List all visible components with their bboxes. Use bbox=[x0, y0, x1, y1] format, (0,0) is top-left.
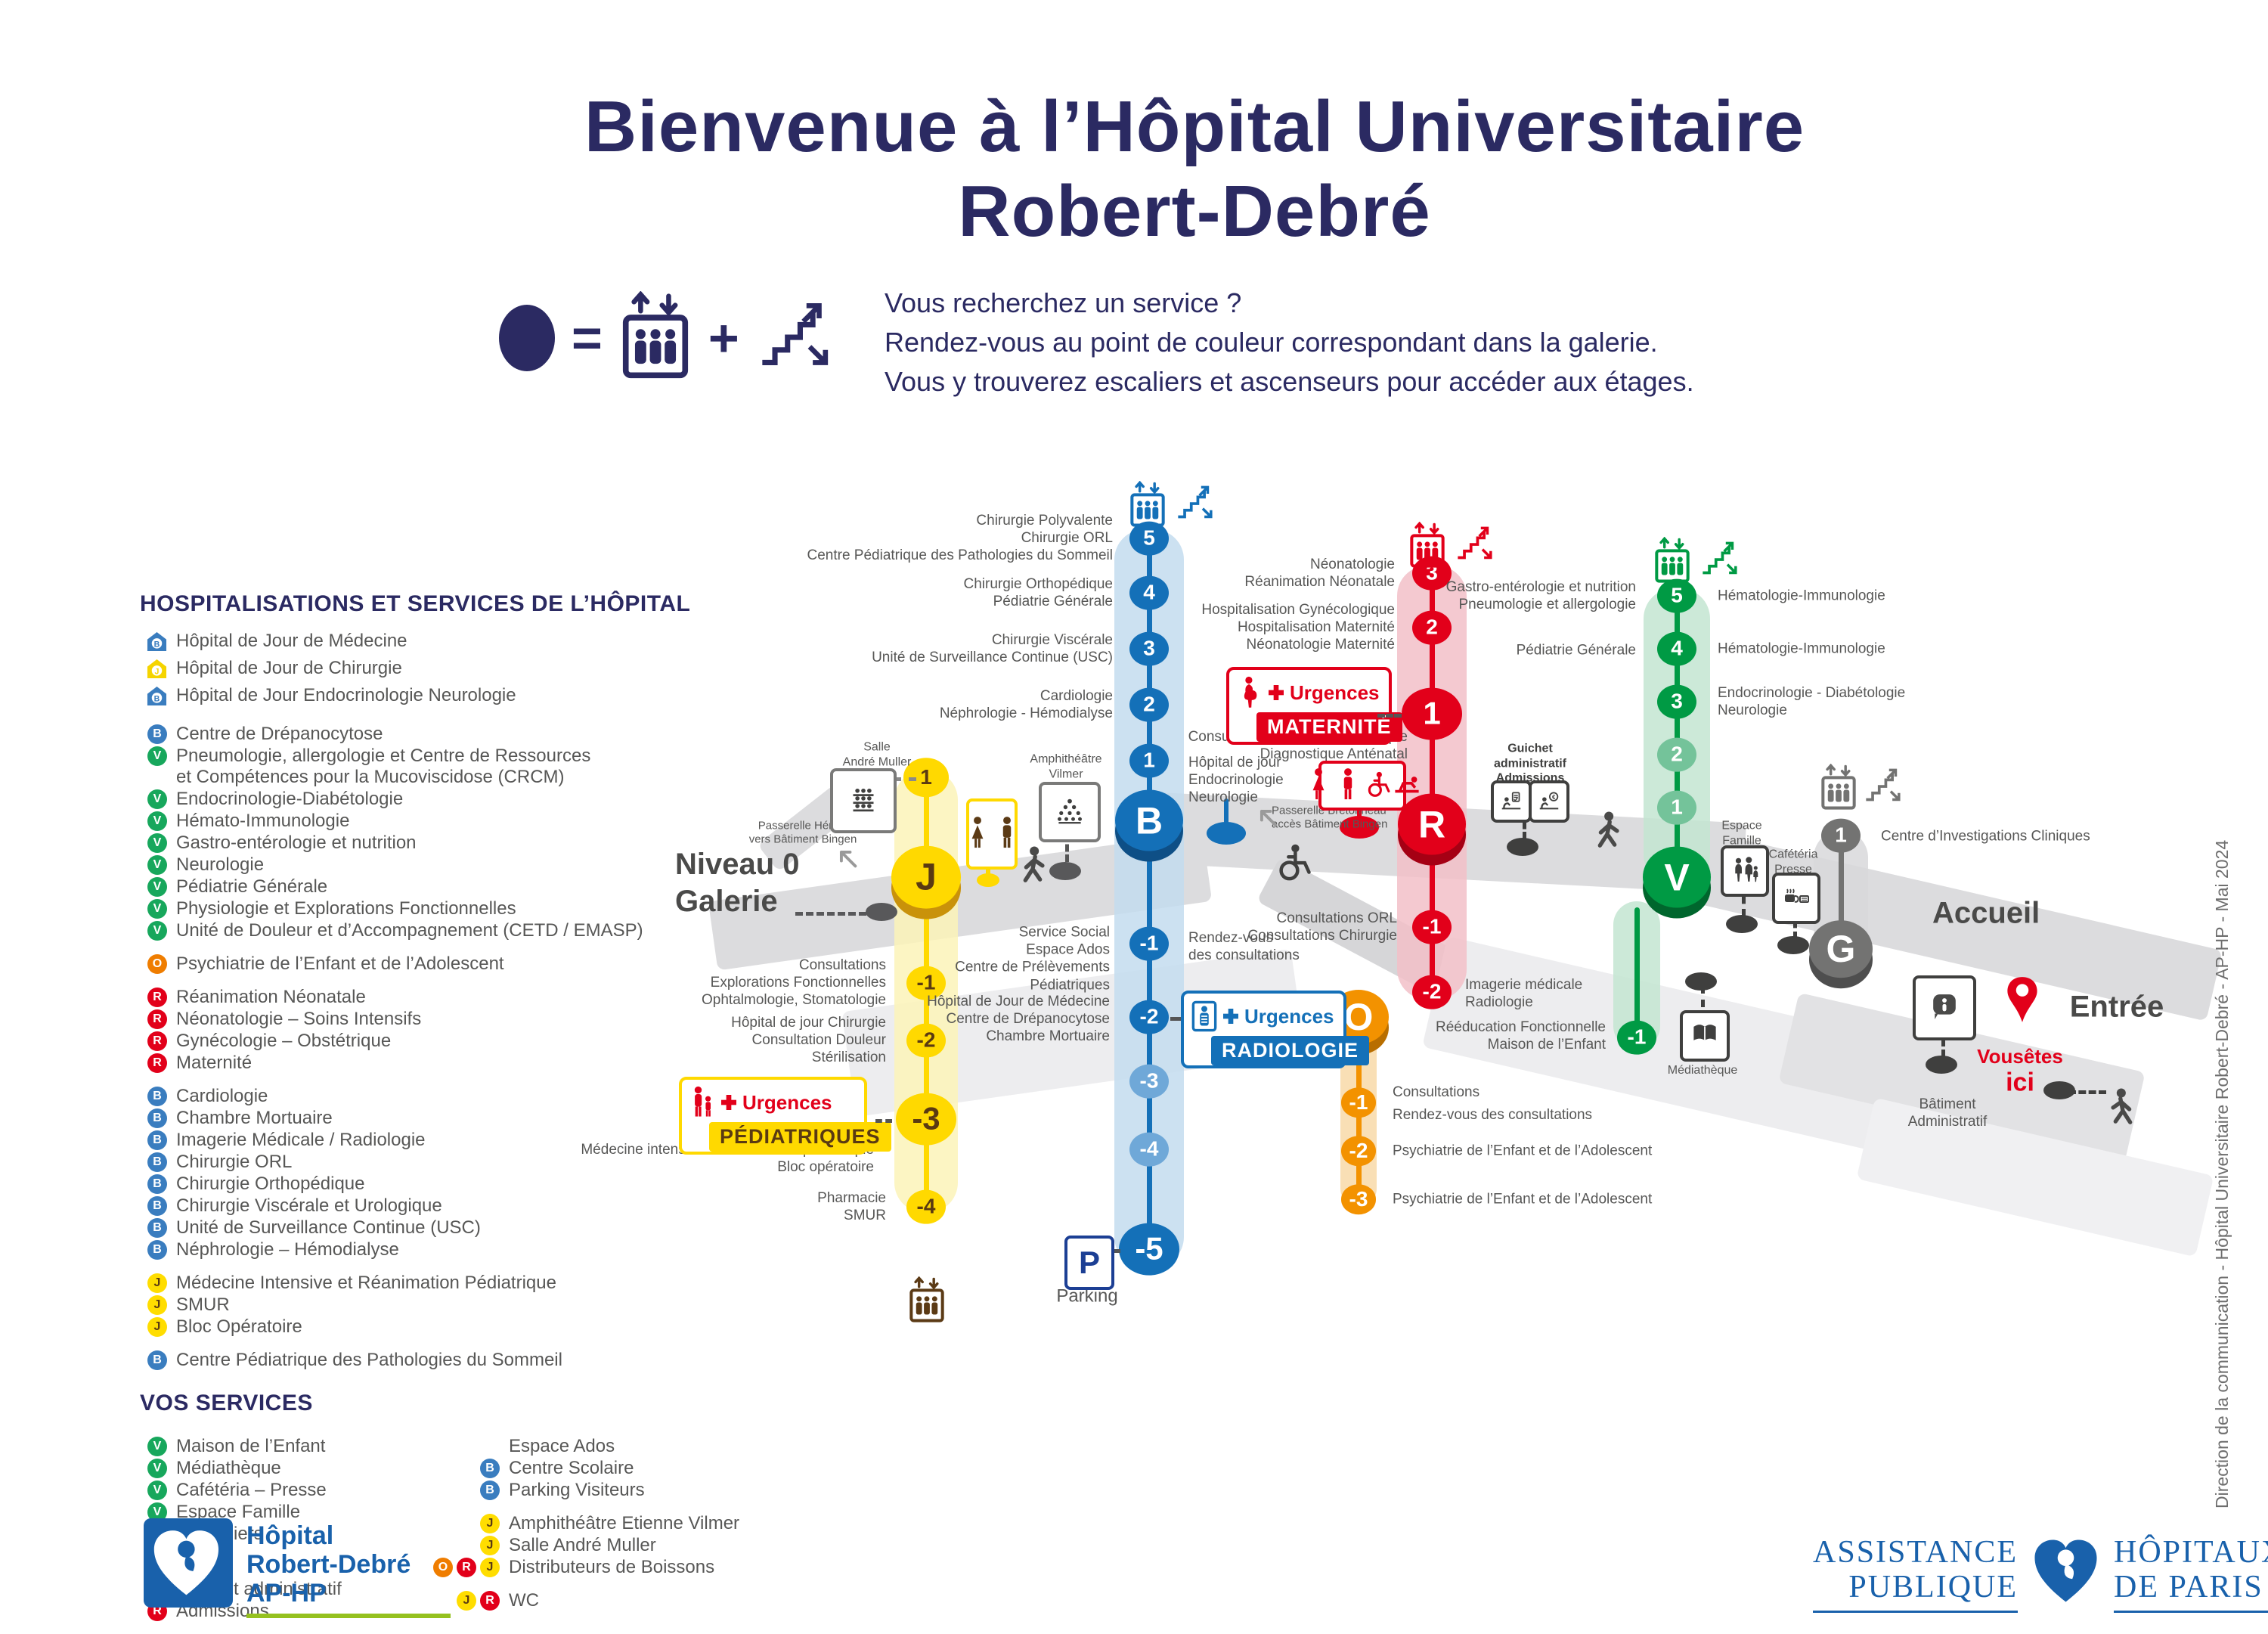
floor-R--2: -2 bbox=[1412, 975, 1452, 1009]
hub-J: J bbox=[891, 846, 961, 909]
elevator-icon-R bbox=[1408, 522, 1447, 572]
legend-item-badges: B bbox=[140, 724, 167, 744]
pregnant-icon bbox=[1237, 676, 1263, 709]
hospital-logo: Hôpital Robert-Debré AP-HP bbox=[144, 1518, 451, 1618]
person-icon bbox=[1592, 811, 1622, 854]
map-label: Psychiatrie de l’Enfant et de l’Adolesce… bbox=[1393, 1142, 1652, 1159]
man-icon bbox=[993, 816, 1021, 849]
column-line-V-lower bbox=[1634, 907, 1640, 1037]
info-icon bbox=[1931, 990, 1958, 1027]
legend-item-label: Hôpital de Jour de Médecine bbox=[176, 631, 407, 652]
urgences-pediatriques-sub: PÉDIATRIQUES bbox=[709, 1122, 891, 1152]
intro-line: Rendez-vous au point de couleur correspo… bbox=[885, 323, 1694, 362]
badge-V: V bbox=[147, 746, 167, 766]
legend-item-label: Cardiologie bbox=[176, 1086, 268, 1107]
legend-item-label: Centre Pédiatrique des Pathologies du So… bbox=[176, 1350, 562, 1371]
desk-doc-icon bbox=[1501, 787, 1522, 817]
legend-item: JBloc Opératoire bbox=[140, 1316, 745, 1338]
map-label: Niveau 0Galerie bbox=[675, 846, 800, 920]
legend-item: BCardiologie bbox=[140, 1086, 745, 1107]
legend-group: BCentre Pédiatrique des Pathologies du S… bbox=[140, 1350, 745, 1371]
legend-item-badges: J bbox=[140, 658, 167, 684]
legend-item-label: Chambre Mortuaire bbox=[176, 1108, 333, 1129]
legend-item-label: Pédiatrie Générale bbox=[176, 876, 327, 898]
legend-item-badges: B bbox=[140, 1350, 167, 1370]
xray-icon bbox=[1191, 1000, 1217, 1033]
meeting-icon bbox=[850, 783, 877, 816]
map-label: Consultations ORLConsultations Chirurgie bbox=[1248, 910, 1398, 944]
info-icon bbox=[1931, 990, 1958, 1023]
legend-item: JHôpital de Jour de Chirurgie bbox=[140, 658, 745, 684]
woman-icon bbox=[964, 816, 991, 849]
aphp-text: PUBLIQUE bbox=[1813, 1570, 2018, 1605]
stairs-icon bbox=[1863, 767, 1901, 805]
hopital-de-jour-chirurgie-icon: J bbox=[147, 659, 167, 684]
map-label: AmphithéâtreVilmer bbox=[1030, 752, 1101, 781]
person-icon bbox=[1018, 845, 1048, 889]
amphi-icon bbox=[1056, 794, 1083, 827]
gallery-dot bbox=[1507, 838, 1538, 856]
legend-item: BHôpital de Jour de Médecine bbox=[140, 631, 745, 657]
logo-text: Hôpital bbox=[246, 1521, 451, 1550]
floor-B--4: -4 bbox=[1129, 1133, 1169, 1167]
badge-R: R bbox=[147, 1053, 167, 1073]
legend-item: Espace Ados bbox=[421, 1436, 739, 1457]
desk-euro-icon: € bbox=[1538, 787, 1560, 813]
legend-item-label: Chirurgie Orthopédique bbox=[176, 1174, 364, 1195]
legend-item: VMédiathèque bbox=[140, 1458, 421, 1479]
sign-amphitheatre bbox=[1039, 782, 1101, 842]
pin-icon bbox=[2005, 975, 2040, 1024]
baby-icon bbox=[1393, 767, 1421, 801]
woman-icon bbox=[964, 816, 991, 853]
map-label: PharmacieSMUR bbox=[817, 1189, 886, 1224]
walking-person-icon bbox=[1018, 845, 1048, 893]
legend-item: VHémato-Immunologie bbox=[140, 811, 745, 832]
legend-item-badges: V bbox=[140, 833, 167, 853]
legend-item-label: Gastro-entérologie et nutrition bbox=[176, 833, 417, 854]
wheelchair-icon bbox=[1273, 842, 1312, 885]
legend-item-badges bbox=[421, 1436, 500, 1437]
badge-B: B bbox=[147, 1196, 167, 1216]
arrow-ul-icon bbox=[836, 847, 859, 870]
legend-item: JAmphithéâtre Etienne Vilmer bbox=[421, 1513, 739, 1534]
logo-text: Robert-Debré bbox=[246, 1550, 451, 1579]
services-title: VOS SERVICES bbox=[140, 1391, 745, 1416]
legend-item-badges: V bbox=[140, 1480, 167, 1500]
legend-item: VPhysiologie et Explorations Fonctionnel… bbox=[140, 898, 745, 919]
stairs-icon-R bbox=[1455, 525, 1492, 566]
svg-text:€: € bbox=[1552, 794, 1556, 801]
legend-item-label: Maison de l’Enfant bbox=[176, 1436, 325, 1457]
map-label: ici bbox=[2006, 1067, 2034, 1098]
hub-B: B bbox=[1115, 790, 1183, 851]
badge-V: V bbox=[147, 789, 167, 809]
legend-item: VPédiatrie Générale bbox=[140, 876, 745, 898]
legend-item-badges: B bbox=[140, 1174, 167, 1194]
urgences-pediatriques-header: Urgences bbox=[682, 1080, 864, 1122]
map-label: NéonatologieRéanimation Néonatale bbox=[1244, 556, 1395, 591]
gallery-dot bbox=[1726, 915, 1758, 933]
legend-item: JRWC bbox=[421, 1590, 739, 1611]
legend-item-label: Hôpital de Jour Endocrinologie Neurologi… bbox=[176, 685, 516, 706]
urgences-label: Urgences bbox=[1290, 681, 1380, 705]
man-icon bbox=[993, 816, 1021, 853]
legend-item-label: Psychiatrie de l’Enfant et de l’Adolesce… bbox=[176, 953, 504, 975]
legend-item-badges: J bbox=[140, 1273, 167, 1293]
legend-item-badges: B bbox=[140, 1086, 167, 1106]
map-label: Hospitalisation GynécologiqueHospitalisa… bbox=[1201, 601, 1395, 654]
legend-item-badges: V bbox=[140, 1458, 167, 1478]
walking-person-icon bbox=[1592, 811, 1622, 858]
elevator-icon bbox=[1408, 522, 1447, 569]
floor-V-4: 4 bbox=[1657, 632, 1696, 666]
map-label: Service SocialEspace AdosCentre de Prélè… bbox=[955, 924, 1110, 994]
legend-item-label: Pneumologie, allergologie et Centre de R… bbox=[176, 746, 590, 788]
legend-item-label: Bloc Opératoire bbox=[176, 1316, 302, 1338]
aphp-text: HÔPITAUX bbox=[2114, 1535, 2268, 1570]
floor-B-4: 4 bbox=[1129, 576, 1169, 610]
badge-V: V bbox=[147, 877, 167, 897]
badge-V: V bbox=[147, 855, 167, 875]
legend-item: RMaternité bbox=[140, 1053, 745, 1074]
legend-item-badges: R bbox=[140, 1009, 167, 1029]
badge-J: J bbox=[147, 1317, 167, 1337]
legend-item-badges: B bbox=[140, 1195, 167, 1216]
stairs-icon bbox=[1175, 484, 1213, 522]
aphp-text: DE PARIS bbox=[2114, 1570, 2268, 1605]
gallery-dot bbox=[866, 903, 897, 921]
direction-arrow-icon bbox=[1256, 806, 1279, 833]
aphp-text: ASSISTANCE bbox=[1813, 1535, 2018, 1570]
direction-arrow-icon bbox=[836, 847, 859, 873]
book-icon bbox=[1691, 1018, 1718, 1055]
badge-R: R bbox=[480, 1591, 500, 1611]
badge-V: V bbox=[147, 811, 167, 831]
legend-item-badges: V bbox=[140, 854, 167, 875]
legend-group: JMédecine Intensive et Réanimation Pédia… bbox=[140, 1273, 745, 1338]
legend-item-badges: B bbox=[140, 1152, 167, 1172]
arrow-ul-icon bbox=[1256, 806, 1279, 829]
map-label: Chirurgie OrthopédiquePédiatrie Générale bbox=[963, 575, 1113, 610]
woman-icon bbox=[1305, 767, 1332, 805]
legend-item: ORJDistributeurs de Boissons bbox=[421, 1557, 739, 1578]
sign-wc-maternite bbox=[1318, 761, 1406, 811]
legend-group: BCentre de DrépanocytoseVPneumologie, al… bbox=[140, 724, 745, 941]
sign-guichet-euro: € bbox=[1529, 780, 1569, 823]
cafe-icon bbox=[1783, 880, 1810, 917]
map-label: Pédiatrie Générale bbox=[1517, 641, 1636, 659]
map-label: EspaceFamille bbox=[1721, 818, 1761, 848]
legend-item-label: Imagerie Médicale / Radiologie bbox=[176, 1130, 426, 1151]
badge-J: J bbox=[147, 1273, 167, 1293]
sign-wc-enfants bbox=[966, 798, 1018, 870]
legend-item: VMaison de l’Enfant bbox=[140, 1436, 421, 1457]
legend-item-label: Cafétéria – Presse bbox=[176, 1480, 327, 1501]
legend-item: VUnité de Douleur et d’Accompagnement (C… bbox=[140, 920, 745, 941]
badge-R: R bbox=[147, 1031, 167, 1051]
sign-mediatheque bbox=[1680, 1010, 1730, 1062]
legend-item: JSMUR bbox=[140, 1294, 745, 1316]
badge-J: J bbox=[480, 1536, 500, 1555]
badge-B: B bbox=[147, 1174, 167, 1194]
urgences-radiologie: UrgencesRADIOLOGIE bbox=[1181, 991, 1346, 1068]
legend-item-label: Centre Scolaire bbox=[509, 1458, 634, 1479]
man-icon bbox=[1334, 767, 1362, 801]
family-icon bbox=[1731, 853, 1758, 890]
badge-V: V bbox=[147, 921, 167, 941]
floor-B-3: 3 bbox=[1129, 632, 1169, 666]
legend-item-label: Unité de Douleur et d’Accompagnement (CE… bbox=[176, 920, 643, 941]
aphp-logo: ASSISTANCE PUBLIQUE HÔPITAUX DE PARIS bbox=[1813, 1535, 2268, 1613]
legend-item-label: Hémato-Immunologie bbox=[176, 811, 349, 832]
page-title: Bienvenue à l’Hôpital UniversitaireRober… bbox=[76, 85, 2268, 253]
legend-item-badges: V bbox=[140, 920, 167, 941]
elevator-icon bbox=[1128, 481, 1167, 528]
legend-item-label: Centre de Drépanocytose bbox=[176, 724, 383, 745]
legend-group: BHôpital de Jour de Médecine JHôpital de… bbox=[140, 631, 745, 712]
legend-item-badges: O bbox=[140, 953, 167, 974]
intro-legend-equation: = + bbox=[499, 291, 829, 384]
badge-B: B bbox=[147, 1350, 167, 1370]
dashed-connector bbox=[875, 1119, 892, 1123]
hopital-de-jour-medecine-icon: B bbox=[147, 686, 167, 712]
gallery-dot bbox=[1926, 1056, 1957, 1074]
legend-item-label: Endocrinologie-Diabétologie bbox=[176, 789, 403, 810]
map-label: Rééducation FonctionnelleMaison de l’Enf… bbox=[1436, 1019, 1606, 1053]
legend-group: RRéanimation NéonataleRNéonatologie – So… bbox=[140, 987, 745, 1074]
map-label: GuichetadministratifAdmissions bbox=[1494, 742, 1566, 786]
legend-item: VCafétéria – Presse bbox=[140, 1480, 421, 1501]
legend-item-badges: J bbox=[140, 1294, 167, 1315]
map-label: BâtimentAdministratif bbox=[1908, 1096, 1988, 1130]
map-label: Centre d’Investigations Cliniques bbox=[1881, 827, 2090, 845]
dashed-connector bbox=[1377, 714, 1402, 718]
legend-item-label: Amphithéâtre Etienne Vilmer bbox=[509, 1513, 739, 1534]
floor-B--5: -5 bbox=[1119, 1223, 1179, 1276]
map-label: Chirurgie PolyvalenteChirurgie ORLCentre… bbox=[807, 512, 1113, 565]
floor-O--1: -1 bbox=[1341, 1087, 1376, 1118]
elevator-icon-V bbox=[1653, 537, 1692, 588]
floor-B--2: -2 bbox=[1129, 1000, 1169, 1034]
urgences-radiologie-header: Urgences bbox=[1184, 994, 1343, 1036]
floor-V-1: 1 bbox=[1657, 791, 1696, 825]
aphp-underline bbox=[1813, 1611, 2018, 1613]
svg-text:B: B bbox=[154, 694, 160, 703]
badge-V: V bbox=[147, 833, 167, 853]
legend-item: VEndocrinologie-Diabétologie bbox=[140, 789, 745, 810]
desk-euro-icon: € bbox=[1538, 787, 1560, 817]
man-icon bbox=[1334, 767, 1362, 805]
floor-B--3: -3 bbox=[1129, 1065, 1169, 1099]
map-label: Hôpital de Jour de MédecineCentre de Dré… bbox=[927, 993, 1110, 1046]
legend-item-badges: V bbox=[140, 1436, 167, 1456]
gallery-dot bbox=[1777, 936, 1809, 954]
elevator-icon bbox=[1819, 764, 1858, 811]
stairs-icon-B bbox=[1175, 484, 1213, 526]
intro-line: Vous y trouverez escaliers et ascenseurs… bbox=[885, 362, 1694, 402]
svg-text:B: B bbox=[154, 640, 160, 649]
stairs-icon bbox=[1699, 540, 1737, 578]
badge-V: V bbox=[147, 1481, 167, 1500]
gallery-dot bbox=[1685, 972, 1717, 991]
legend-item-badges: J bbox=[140, 1316, 167, 1337]
svg-text:J: J bbox=[155, 667, 160, 676]
legend-item-badges: V bbox=[140, 811, 167, 831]
legend-item-label: Distributeurs de Boissons bbox=[509, 1557, 714, 1578]
house-icon: B bbox=[147, 686, 167, 706]
legend-item: RNéonatologie – Soins Intensifs bbox=[140, 1009, 745, 1030]
aphp-underline bbox=[2114, 1611, 2268, 1613]
intro-text: Vous recherchez un service ? Rendez-vous… bbox=[885, 284, 1694, 402]
legend-item: OPsychiatrie de l’Enfant et de l’Adolesc… bbox=[140, 953, 745, 975]
intro-line: Vous recherchez un service ? bbox=[885, 284, 1694, 323]
heart-logo-icon bbox=[144, 1518, 233, 1618]
legend-item-badges: B bbox=[140, 1130, 167, 1150]
legend-item: JMédecine Intensive et Réanimation Pédia… bbox=[140, 1273, 745, 1294]
floor-R--1: -1 bbox=[1412, 910, 1452, 944]
cross-icon bbox=[1223, 1009, 1238, 1024]
map-label: Psychiatrie de l’Enfant et de l’Adolesce… bbox=[1393, 1190, 1652, 1208]
plus-sign: + bbox=[708, 308, 739, 368]
stairs-icon bbox=[1455, 525, 1492, 563]
legend-item-label: Hôpital de Jour de Chirurgie bbox=[176, 658, 402, 679]
floor-B--1: -1 bbox=[1129, 927, 1169, 961]
badge-B: B bbox=[147, 1108, 167, 1128]
parking-sign: P bbox=[1064, 1236, 1114, 1290]
badge-V: V bbox=[147, 1437, 167, 1456]
legend-item-label: Salle André Muller bbox=[509, 1535, 656, 1556]
legend-item-label: Chirurgie ORL bbox=[176, 1152, 292, 1173]
map-label: Accueil bbox=[1932, 895, 2040, 932]
map-label: Endocrinologie - DiabétologieNeurologie bbox=[1718, 684, 1905, 719]
badge-J: J bbox=[457, 1591, 476, 1611]
services-col2: Espace AdosBCentre ScolaireBParking Visi… bbox=[421, 1436, 739, 1634]
badge-B: B bbox=[480, 1481, 500, 1500]
cafe-icon bbox=[1783, 880, 1810, 913]
legend-item-badges: B bbox=[140, 631, 167, 657]
legend-item-label: Médiathèque bbox=[176, 1458, 281, 1479]
legend-item-badges: R bbox=[140, 987, 167, 1007]
urgences-radiologie-sub: RADIOLOGIE bbox=[1211, 1036, 1369, 1065]
map-label: Chirurgie ViscéraleUnité de Surveillance… bbox=[872, 631, 1113, 666]
legend-panel: HOSPITALISATIONS ET SERVICES DE L’HÔPITA… bbox=[140, 591, 745, 1634]
legend-item-label: Physiologie et Explorations Fonctionnell… bbox=[176, 898, 516, 919]
elevator-icon-B bbox=[1128, 481, 1167, 532]
badge-B: B bbox=[147, 1240, 167, 1260]
map-label: Gastro-entérologie et nutritionPneumolog… bbox=[1446, 578, 1636, 613]
legend-group: OPsychiatrie de l’Enfant et de l’Adolesc… bbox=[140, 953, 745, 975]
floor-V-3: 3 bbox=[1657, 685, 1696, 719]
wheelchair-icon bbox=[1273, 842, 1312, 882]
heart-logo-icon bbox=[144, 1518, 233, 1608]
poster-root: Bienvenue à l’Hôpital UniversitaireRober… bbox=[0, 0, 2268, 1629]
badge-B: B bbox=[147, 1152, 167, 1172]
wheelchair-icon bbox=[1364, 767, 1391, 805]
map-label: ConsultationsExplorations Fonctionnelles… bbox=[702, 957, 886, 1009]
hopital-de-jour-medecine-icon: B bbox=[147, 631, 167, 657]
person-icon bbox=[2108, 1087, 2138, 1131]
cross-icon bbox=[1269, 685, 1284, 700]
urgences-label: Urgences bbox=[1244, 1005, 1334, 1028]
legend-item-badges: B bbox=[421, 1458, 500, 1478]
legend-title: HOSPITALISATIONS ET SERVICES DE L’HÔPITA… bbox=[140, 591, 745, 617]
heart-icon bbox=[2030, 1535, 2102, 1607]
stairs-icon-G bbox=[1863, 767, 1901, 808]
elevator-icon bbox=[619, 291, 692, 380]
gallery-dot bbox=[1049, 862, 1081, 880]
sign-espace-famille bbox=[1721, 845, 1769, 897]
map-label: Hôpital de jour ChirurgieConsultation Do… bbox=[731, 1014, 886, 1067]
legend-item-badges: V bbox=[140, 789, 167, 809]
badge-J: J bbox=[480, 1558, 500, 1577]
urgences-maternite-header: Urgences bbox=[1229, 670, 1389, 712]
floor-B-1: 1 bbox=[1129, 744, 1169, 778]
badge-B: B bbox=[147, 1130, 167, 1150]
legend-item-label: Réanimation Néonatale bbox=[176, 987, 366, 1008]
floor-J--4: -4 bbox=[906, 1190, 946, 1224]
sign-salle-muller bbox=[830, 768, 897, 833]
floor-O--2: -2 bbox=[1341, 1136, 1376, 1166]
sign-accueil-info bbox=[1913, 975, 1976, 1040]
legend-item: BCentre de Drépanocytose bbox=[140, 724, 745, 745]
urgences-pediatriques: UrgencesPÉDIATRIQUES bbox=[679, 1077, 867, 1155]
badge-B: B bbox=[480, 1459, 500, 1478]
legend-item-label: Unité de Surveillance Continue (USC) bbox=[176, 1217, 481, 1239]
badge-B: B bbox=[147, 724, 167, 744]
woman-icon bbox=[1305, 767, 1332, 801]
map-label: SalleAndré Muller bbox=[843, 739, 912, 769]
wheelchair-icon bbox=[1364, 767, 1391, 801]
dashed-connector bbox=[894, 777, 916, 781]
legend-item-label: Néonatologie – Soins Intensifs bbox=[176, 1009, 421, 1030]
cross-icon bbox=[721, 1095, 736, 1110]
map-label: Vousêtes bbox=[1977, 1045, 2063, 1069]
floor-J--3: -3 bbox=[896, 1093, 956, 1146]
legend-item-label: Chirurgie Viscérale et Urologique bbox=[176, 1195, 442, 1217]
badge-V: V bbox=[147, 1459, 167, 1478]
floor-O--3: -3 bbox=[1341, 1184, 1376, 1214]
gallery-dot bbox=[977, 873, 999, 887]
floor-V--1: -1 bbox=[1617, 1021, 1656, 1055]
badge-R: R bbox=[457, 1558, 476, 1577]
elevator-icon-G bbox=[1819, 764, 1858, 814]
stairs-icon bbox=[756, 299, 829, 372]
map-label: Médiathèque bbox=[1668, 1063, 1738, 1078]
sign-cafeteria bbox=[1772, 873, 1820, 924]
urgences-maternite: UrgencesMATERNITÉ bbox=[1226, 667, 1392, 745]
badge-B: B bbox=[147, 1218, 167, 1238]
badge-O: O bbox=[147, 954, 167, 974]
legend-item-badges: B bbox=[140, 1217, 167, 1238]
book-icon bbox=[1691, 1018, 1718, 1051]
legend-item-badges: B bbox=[421, 1480, 500, 1500]
legend-item: BCentre Scolaire bbox=[421, 1458, 739, 1479]
legend-item: BChirurgie Viscérale et Urologique bbox=[140, 1195, 745, 1217]
floor-R-2: 2 bbox=[1412, 611, 1452, 645]
desk-doc-icon bbox=[1501, 787, 1522, 813]
badge-R: R bbox=[147, 1009, 167, 1029]
legend-item: BUnité de Surveillance Continue (USC) bbox=[140, 1217, 745, 1239]
baby-icon bbox=[1393, 767, 1421, 805]
legend-item-label: Gynécologie – Obstétrique bbox=[176, 1031, 391, 1052]
legend-item-badges: B bbox=[140, 1108, 167, 1128]
map-label: Hématologie-Immunologie bbox=[1718, 587, 1885, 604]
credit-text: Direction de la communication - Hôpital … bbox=[2212, 840, 2232, 1508]
legend-item-badges: R bbox=[140, 1053, 167, 1073]
legend-item: JSalle André Muller bbox=[421, 1535, 739, 1556]
legend-item: BChirurgie Orthopédique bbox=[140, 1174, 745, 1195]
